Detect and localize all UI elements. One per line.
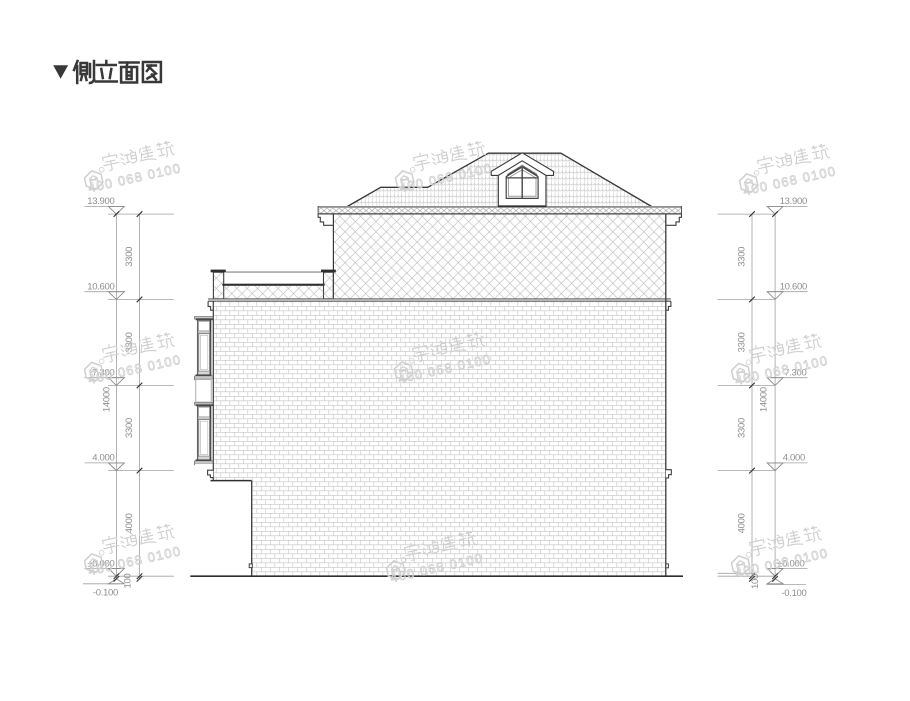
svg-text:3300: 3300	[737, 418, 748, 438]
svg-text:3300: 3300	[737, 247, 748, 267]
svg-text:13.900: 13.900	[780, 196, 807, 207]
svg-text:4000: 4000	[737, 513, 748, 533]
svg-text:-0.100: -0.100	[781, 588, 806, 599]
svg-text:3300: 3300	[737, 332, 748, 352]
svg-text:10.600: 10.600	[780, 282, 807, 293]
svg-text:14000: 14000	[759, 387, 770, 412]
svg-text:3300: 3300	[124, 332, 135, 352]
svg-text:3300: 3300	[124, 418, 135, 438]
svg-text:10.600: 10.600	[87, 282, 114, 293]
svg-text:14000: 14000	[102, 387, 113, 412]
svg-text:4.000: 4.000	[783, 453, 805, 464]
svg-text:3300: 3300	[124, 247, 135, 267]
svg-text:4000: 4000	[124, 513, 135, 533]
svg-text:13.900: 13.900	[87, 196, 114, 207]
svg-text:100: 100	[122, 574, 133, 589]
svg-text:-0.100: -0.100	[93, 587, 118, 598]
svg-text:4.000: 4.000	[92, 453, 114, 464]
